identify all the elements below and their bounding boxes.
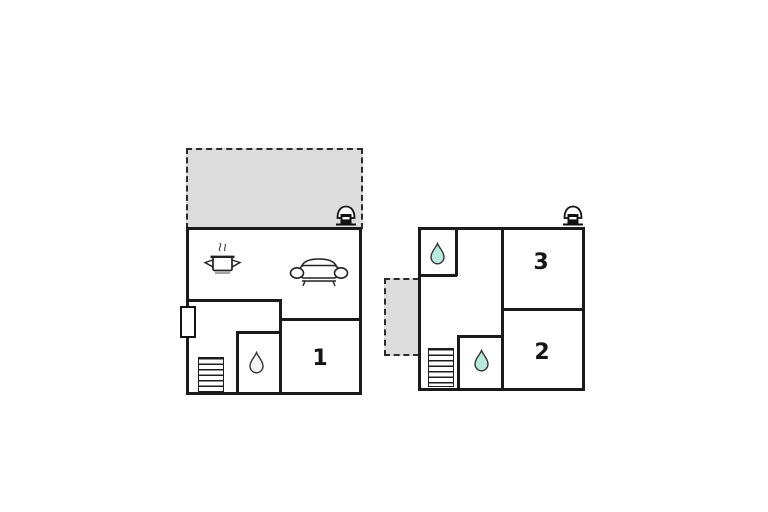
door: [180, 306, 196, 338]
interior-wall: [188, 299, 282, 302]
bathroom-wall: [236, 331, 239, 393]
room-label-2: 2: [528, 339, 556, 367]
bathroom-wall: [236, 331, 281, 334]
stairs-icon: [198, 357, 224, 393]
room-label-3: 3: [527, 249, 555, 277]
fireplace-icon: [335, 202, 357, 226]
stairs-icon: [428, 348, 454, 387]
cooking-pot-icon: [200, 240, 244, 284]
bathroom-wall: [455, 230, 458, 276]
interior-wall: [279, 299, 282, 393]
bathroom-wall: [457, 335, 503, 338]
interior-wall: [504, 308, 583, 311]
terrace-right: [384, 278, 419, 356]
water-drop-icon: [429, 242, 446, 265]
room-label-1: 1: [306, 345, 334, 373]
interior-wall: [282, 318, 360, 321]
bathroom-wall: [421, 274, 457, 277]
floorplan-canvas: 1: [0, 0, 768, 512]
fireplace-icon: [562, 202, 584, 226]
sofa-icon: [288, 252, 350, 292]
bathroom-wall: [457, 335, 460, 389]
water-drop-icon: [473, 349, 490, 372]
water-drop-icon: [248, 351, 265, 374]
